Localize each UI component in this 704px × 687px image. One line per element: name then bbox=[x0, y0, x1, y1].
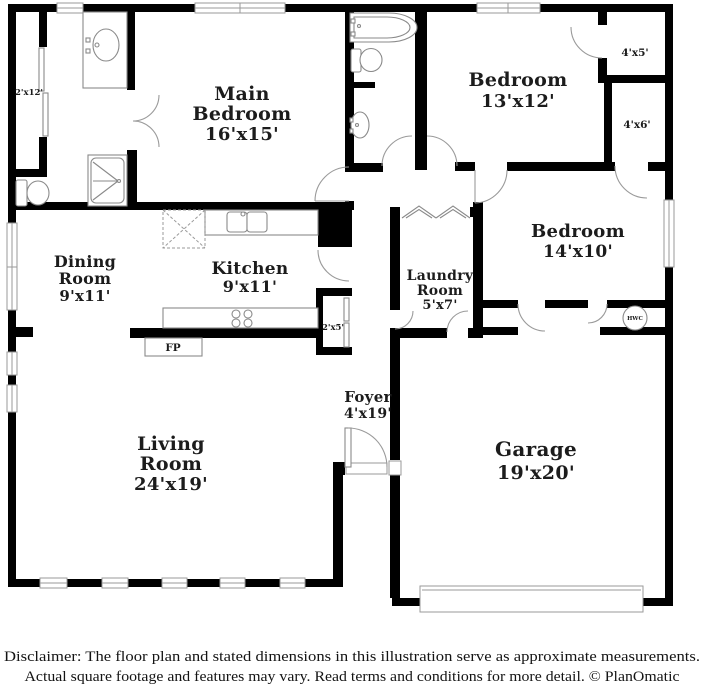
closet-4x5-door-arc bbox=[571, 27, 602, 58]
label-fireplace: FP bbox=[165, 342, 180, 354]
sliding-door-panel bbox=[39, 48, 44, 91]
main-bedroom-door-arc bbox=[315, 167, 349, 201]
laundry-west-door-arc bbox=[395, 311, 413, 329]
label-bedroom-14-dims: 14'x10' bbox=[543, 242, 613, 262]
walls bbox=[8, 4, 673, 606]
label-kitchen-dims: 9'x11' bbox=[223, 277, 278, 296]
label-main-bedroom-dims: 16'x15' bbox=[205, 124, 279, 145]
kitchen-sink-basin bbox=[247, 212, 267, 232]
label-closet-2x5: 2'x5' bbox=[322, 323, 344, 333]
disclaimer-line-2: Actual square footage and features may v… bbox=[25, 669, 680, 685]
floor-plan-image: Main Bedroom 16'x15' Bedroom 13'x12' Bed… bbox=[0, 0, 704, 687]
floor-plan-page: Main Bedroom 16'x15' Bedroom 13'x12' Bed… bbox=[0, 0, 704, 687]
label-dining-dims: 9'x11' bbox=[59, 287, 110, 305]
refrigerator-space bbox=[163, 210, 205, 248]
label-living: Living bbox=[137, 433, 205, 455]
label-dining: Room bbox=[59, 269, 112, 288]
kitchen-sink-basin bbox=[227, 212, 247, 232]
faucet-icon bbox=[351, 32, 355, 36]
disclaimer: Disclaimer: The floor plan and stated di… bbox=[4, 649, 700, 685]
faucet-icon bbox=[350, 118, 353, 122]
label-foyer: Foyer bbox=[344, 388, 392, 406]
faucet-icon bbox=[350, 129, 353, 133]
toilet-bowl bbox=[27, 181, 49, 205]
label-bedroom-14: Bedroom bbox=[531, 221, 625, 242]
sliding-door-panel bbox=[344, 298, 349, 321]
disclaimer-line-1: Disclaimer: The floor plan and stated di… bbox=[4, 649, 700, 665]
bifold-door-icon bbox=[436, 206, 470, 218]
closet-4x6-door-arc bbox=[615, 166, 647, 198]
toilet-tank bbox=[16, 180, 27, 206]
front-door-threshold bbox=[346, 463, 387, 474]
label-living-dims: 24'x19' bbox=[134, 474, 208, 495]
label-laundry-dims: 5'x7' bbox=[422, 298, 457, 313]
bedroom-14-door-arc bbox=[475, 170, 507, 203]
label-garage-dims: 19'x20' bbox=[497, 462, 575, 484]
faucet-icon bbox=[86, 49, 90, 53]
label-garage: Garage bbox=[495, 437, 577, 461]
label-water-heater: HWC bbox=[627, 316, 643, 322]
label-laundry: Laundry bbox=[407, 268, 474, 284]
label-main-bedroom: Bedroom bbox=[193, 103, 292, 125]
label-closet-4x6: 4'x6' bbox=[623, 119, 650, 131]
label-laundry: Room bbox=[417, 283, 463, 299]
sliding-door-panel bbox=[43, 93, 48, 136]
label-closet-2x12: 2'x12' bbox=[15, 88, 43, 98]
garage-side-opening bbox=[389, 461, 401, 475]
bathroom-sink bbox=[351, 112, 369, 138]
label-living: Room bbox=[140, 453, 202, 475]
hwc-door-arc bbox=[588, 304, 607, 323]
kitchen-door-arc bbox=[318, 250, 349, 281]
toilet-bowl bbox=[360, 49, 382, 72]
label-bedroom-13-dims: 13'x12' bbox=[481, 91, 555, 112]
faucet-icon bbox=[351, 19, 355, 23]
label-bedroom-13: Bedroom bbox=[469, 69, 568, 91]
bedroom-13-door-arc bbox=[427, 136, 457, 166]
hall-bath-door-arc bbox=[382, 136, 412, 166]
refrigerator-space-lines bbox=[163, 210, 205, 248]
label-kitchen: Kitchen bbox=[211, 259, 288, 279]
faucet-icon bbox=[86, 38, 90, 42]
kitchen-counter bbox=[163, 308, 318, 328]
label-closet-4x5: 4'x5' bbox=[621, 47, 648, 59]
sliding-door-panel bbox=[344, 323, 349, 347]
room-labels: Main Bedroom 16'x15' Bedroom 13'x12' Bed… bbox=[15, 47, 651, 495]
front-door-arc bbox=[348, 428, 387, 467]
bifold-door-icon bbox=[402, 206, 436, 218]
label-foyer-dims: 4'x19' bbox=[344, 406, 392, 422]
bath-double-door-arc bbox=[133, 95, 159, 147]
laundry-south-door-arc bbox=[447, 311, 468, 332]
label-main-bedroom: Main bbox=[214, 83, 270, 105]
front-door-panel bbox=[345, 428, 351, 467]
bathroom-sink bbox=[93, 29, 119, 61]
garage-hall-door-arc bbox=[518, 304, 545, 331]
